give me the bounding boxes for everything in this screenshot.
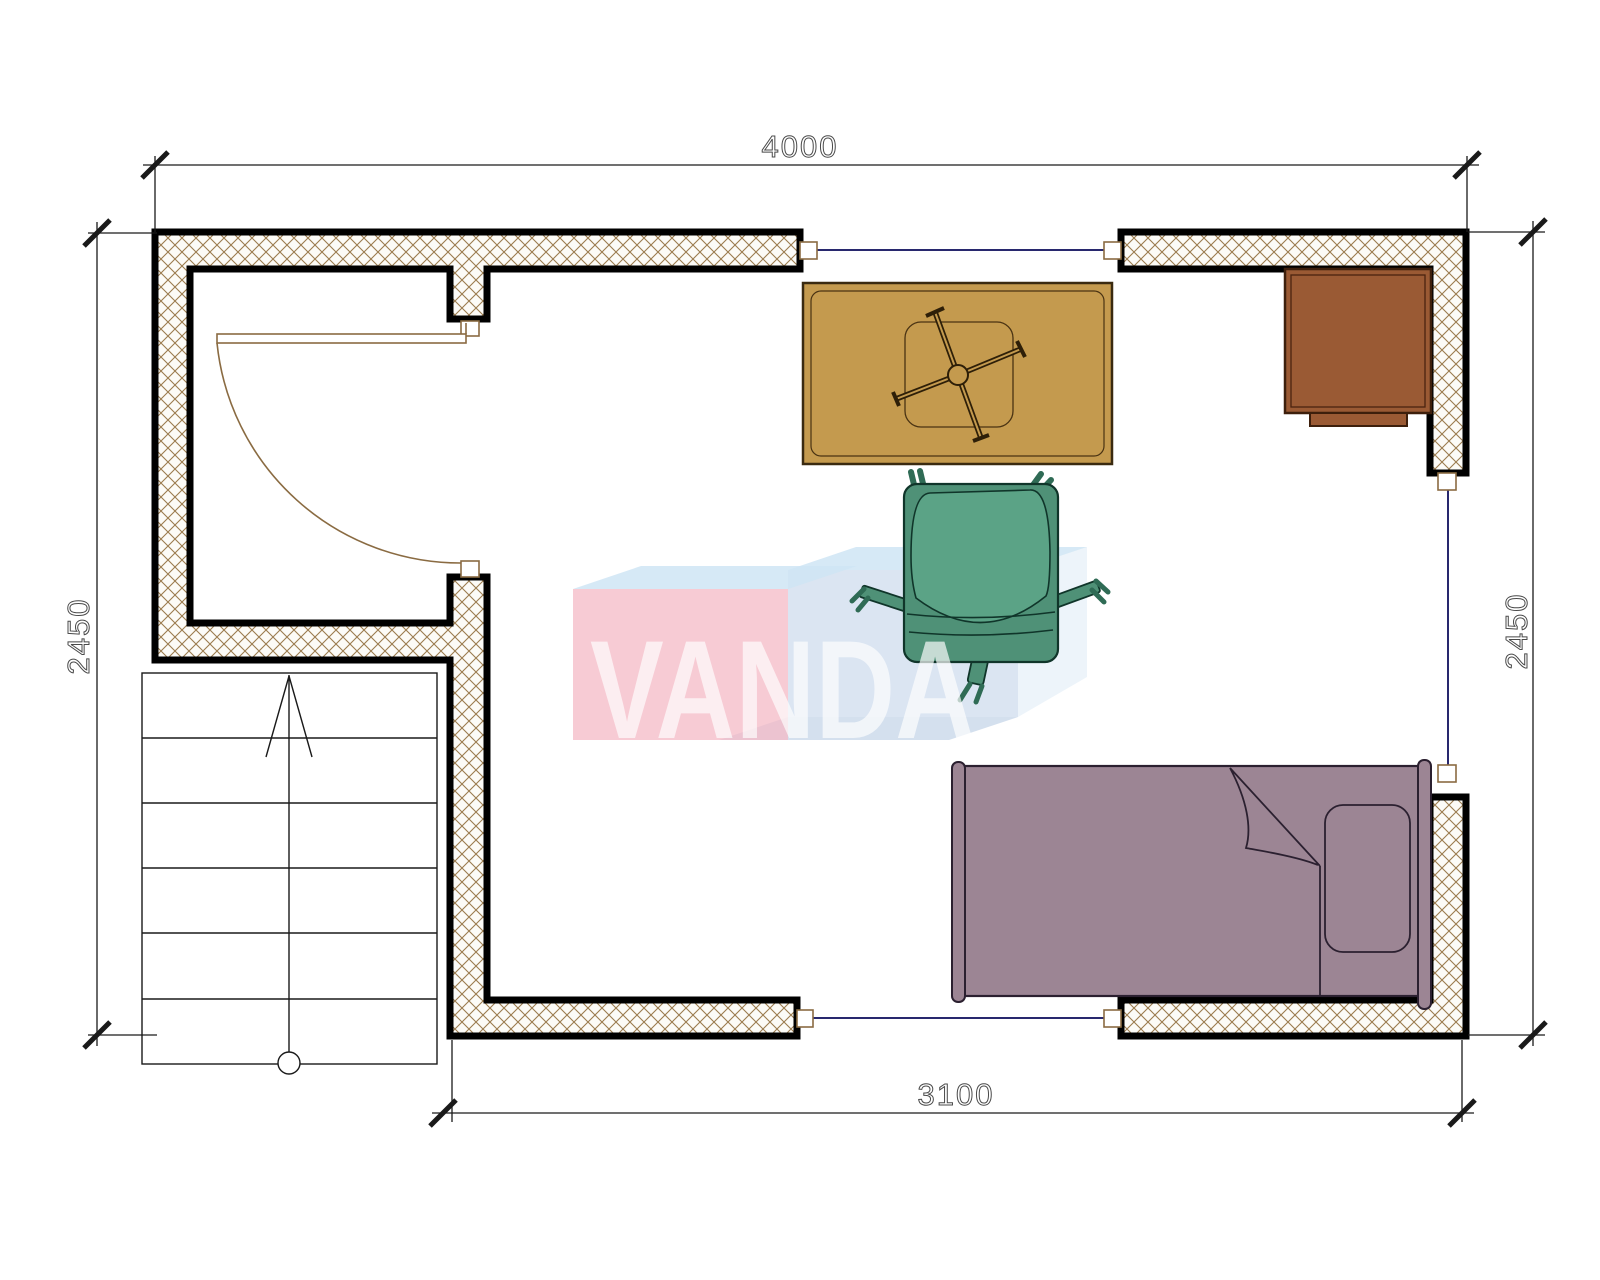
door-swing-arc bbox=[217, 343, 461, 563]
bed-rail-left bbox=[952, 762, 965, 1002]
dimension-label-left: 2450 bbox=[61, 598, 96, 675]
dimension-label-top: 4000 bbox=[762, 129, 839, 164]
bedside-cabinet bbox=[1285, 269, 1431, 426]
floor-plan-canvas: VANDA 4000 2450 2450 3100 bbox=[0, 0, 1600, 1280]
door-leaf bbox=[217, 334, 466, 343]
chair-backrest bbox=[911, 490, 1050, 623]
single-bed bbox=[952, 760, 1431, 1009]
cabinet-body bbox=[1285, 269, 1431, 413]
watermark-text: VANDA bbox=[590, 611, 975, 768]
opening-jamb-marker bbox=[797, 1010, 813, 1027]
opening-jamb-marker bbox=[1104, 242, 1121, 259]
staircase bbox=[142, 673, 437, 1074]
entry-door bbox=[217, 321, 479, 577]
bed-rail-right bbox=[1418, 760, 1431, 1009]
dimension-top bbox=[142, 152, 1480, 232]
opening-jamb-marker bbox=[1438, 473, 1456, 490]
cabinet-handle bbox=[1310, 413, 1407, 426]
opening-jamb-marker bbox=[1104, 1010, 1121, 1027]
opening-jamb-marker bbox=[1438, 765, 1456, 782]
dimension-label-bottom: 3100 bbox=[918, 1077, 995, 1112]
dimension-label-right: 2450 bbox=[1499, 593, 1534, 670]
pedestal-hub bbox=[948, 365, 968, 385]
stair-start-circle bbox=[278, 1052, 300, 1074]
door-jamb-bottom bbox=[461, 561, 479, 577]
bed-pillow bbox=[1325, 805, 1410, 952]
opening-jamb-marker bbox=[800, 242, 817, 259]
floor-plan-page: VANDA 4000 2450 2450 3100 bbox=[0, 0, 1600, 1280]
desk-table bbox=[803, 283, 1112, 464]
